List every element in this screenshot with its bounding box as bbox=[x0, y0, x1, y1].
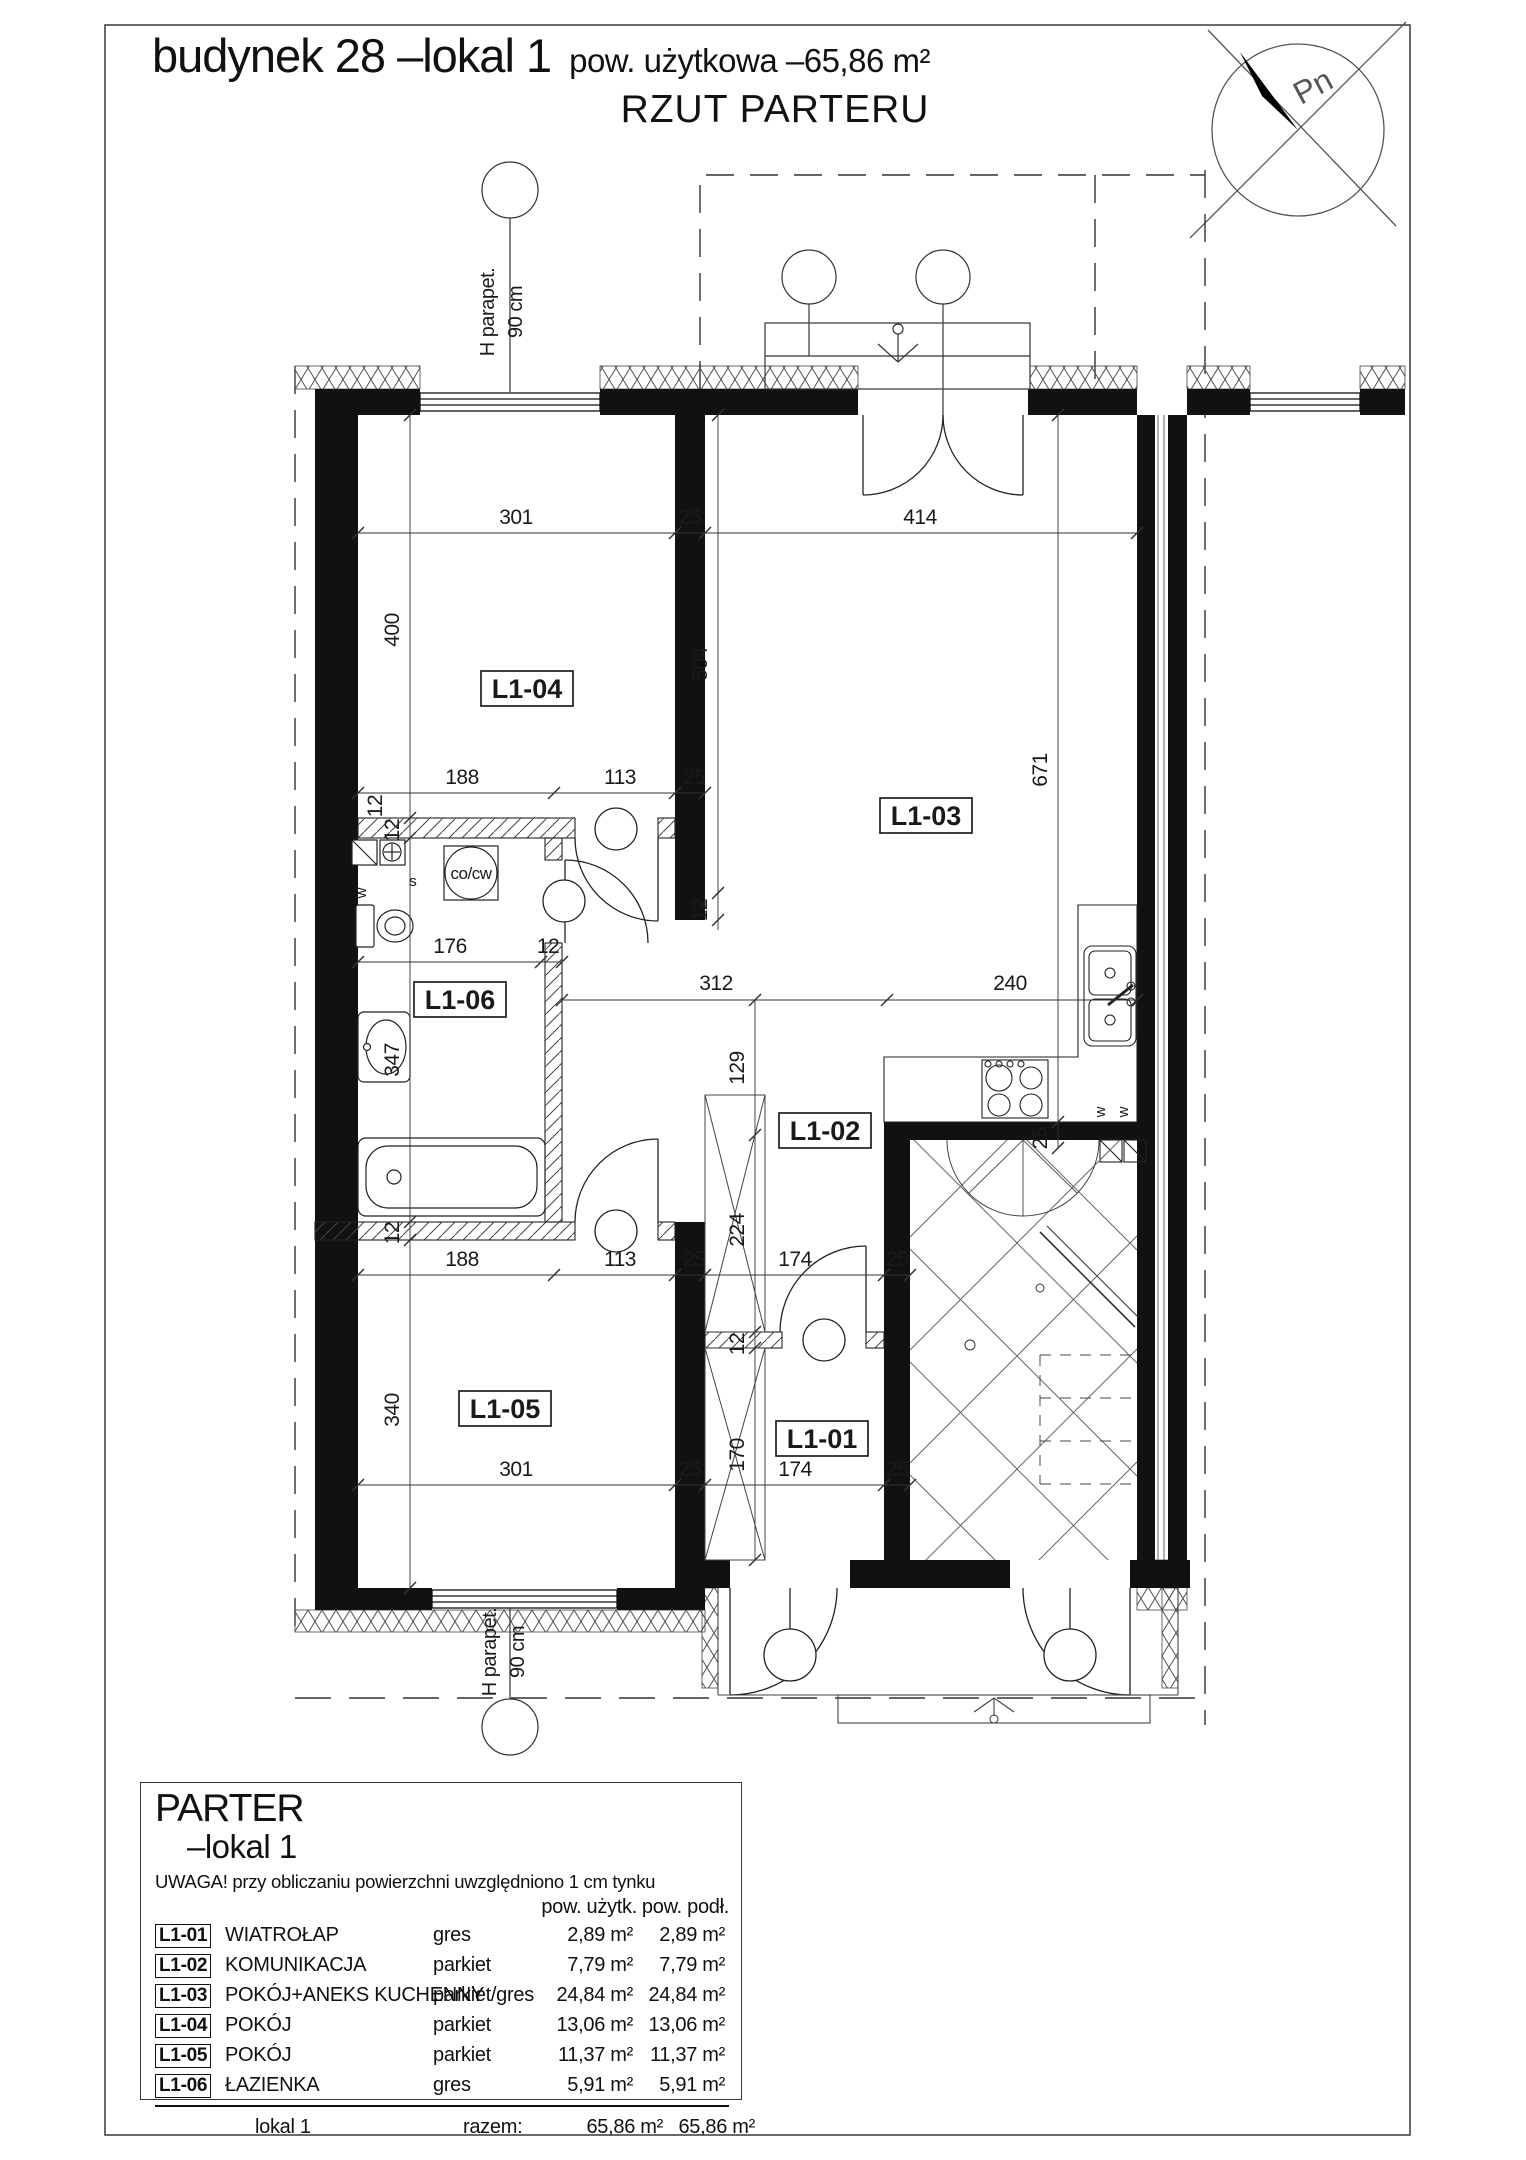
room-label-l106: L1-06 bbox=[414, 982, 506, 1017]
dim-12-p1: 12 bbox=[364, 795, 387, 817]
room-area-uzytk: 2,89 m² bbox=[537, 1924, 633, 1947]
left-wall bbox=[315, 389, 358, 1610]
window-neighbor-top bbox=[1250, 393, 1360, 411]
table-row: L1-01 WIATROŁAP gres 2,89 m² 2,89 m² bbox=[155, 1921, 729, 1951]
total-name: lokal 1 bbox=[225, 2116, 463, 2139]
party-wall-gap-lines bbox=[1158, 415, 1164, 1560]
kitchen-sink bbox=[1084, 946, 1136, 1046]
door-l106 bbox=[543, 860, 648, 943]
room-code: L1-06 bbox=[155, 2074, 211, 2098]
room-label-l102: L1-02 bbox=[779, 1113, 871, 1148]
room-area-uzytk: 13,06 m² bbox=[537, 2014, 633, 2037]
dim-12-bath: 12 bbox=[537, 935, 559, 958]
room-label-l105: L1-05 bbox=[459, 1391, 551, 1426]
dim-504-wall: 504 bbox=[689, 646, 712, 680]
vent-label-w3: w bbox=[1115, 1106, 1132, 1118]
room-floor: parkiet bbox=[433, 1954, 537, 1977]
legend-table: pow. użytk. pow. podł. L1-01 WIATROŁAP g… bbox=[155, 1895, 729, 2145]
svg-text:L1-06: L1-06 bbox=[425, 985, 496, 1015]
dim-414-top: 414 bbox=[903, 506, 937, 529]
dim-312-corridor: 312 bbox=[699, 972, 733, 995]
vent-label-w1: w bbox=[353, 887, 370, 899]
table-row: L1-06 ŁAZIENKA gres 5,91 m² 5,91 m² bbox=[155, 2071, 729, 2101]
dim-113-low: 113 bbox=[604, 1248, 636, 1271]
stove bbox=[982, 1060, 1048, 1118]
col-header-uzytk: pow. użytk. bbox=[541, 1896, 637, 1919]
total-label: razem: bbox=[463, 2116, 567, 2139]
table-row: L1-04 POKÓJ parkiet 13,06 m² 13,06 m² bbox=[155, 2011, 729, 2041]
table-row: L1-03 POKÓJ+ANEKS KUCHENNY parkiet/gres … bbox=[155, 1981, 729, 2011]
bathtub bbox=[358, 1138, 545, 1216]
entry-double-door bbox=[863, 415, 1023, 495]
room-name: POKÓJ bbox=[225, 2014, 433, 2037]
compass-label: Pn bbox=[1287, 61, 1338, 111]
room-code: L1-03 bbox=[155, 1984, 211, 2008]
dim-25-stairwall: 25 bbox=[1029, 1127, 1052, 1149]
dim-25-low: 25 bbox=[683, 1248, 705, 1271]
dim-12-p4: 12 bbox=[726, 1333, 749, 1355]
north-compass: Pn bbox=[1190, 22, 1406, 238]
room-area-uzytk: 7,79 m² bbox=[537, 1954, 633, 1977]
parapet-note-bottom-1: H parapet. bbox=[479, 1608, 501, 1696]
room-code: L1-05 bbox=[155, 2044, 211, 2068]
north-needle-icon bbox=[1240, 52, 1298, 130]
dim-12-wall2: 12 bbox=[689, 899, 712, 921]
dim-174-l101-top: 174 bbox=[778, 1248, 812, 1271]
legend-title: PARTER bbox=[155, 1789, 729, 1830]
dim-25-l105: 25 bbox=[679, 1458, 701, 1481]
total-area-podl: 65,86 m² bbox=[663, 2116, 755, 2139]
legend-note: UWAGA! przy obliczaniu powierzchni uwzgl… bbox=[155, 1871, 729, 1893]
window-l105 bbox=[432, 1590, 617, 1608]
room-name: ŁAZIENKA bbox=[225, 2074, 433, 2097]
parapet-note-top-1: H parapet. bbox=[477, 268, 499, 356]
stair-top-wall bbox=[884, 1122, 1137, 1140]
room-area-uzytk: 24,84 m² bbox=[537, 1984, 633, 2007]
legend-header-row: pow. użytk. pow. podł. bbox=[155, 1895, 729, 1921]
table-row: L1-02 KOMUNIKACJA parkiet 7,79 m² 7,79 m… bbox=[155, 1951, 729, 1981]
flue-shaft-s-icon bbox=[380, 840, 405, 865]
dim-671-l103: 671 bbox=[1029, 753, 1052, 787]
insulation-bands bbox=[295, 366, 1405, 1688]
dim-25-stair: 25 bbox=[886, 1248, 908, 1271]
dim-12-p3: 12 bbox=[381, 1222, 404, 1244]
legend-panel: PARTER –lokal 1 UWAGA! przy obliczaniu p… bbox=[140, 1782, 742, 2100]
parapet-note-bottom-2: 90 cm bbox=[507, 1626, 529, 1678]
room-area-podl: 5,91 m² bbox=[633, 2074, 725, 2097]
dim-240-kitchen: 240 bbox=[993, 972, 1027, 995]
party-wall-inner bbox=[1137, 415, 1155, 1560]
room-floor: parkiet bbox=[433, 2044, 537, 2067]
room-name: KOMUNIKACJA bbox=[225, 1954, 433, 1977]
dim-301-top: 301 bbox=[499, 506, 533, 529]
dim-347-bath: 347 bbox=[381, 1043, 404, 1077]
dim-340-l105: 340 bbox=[381, 1393, 404, 1427]
room-floor: gres bbox=[433, 1924, 537, 1947]
room-area-uzytk: 11,37 m² bbox=[537, 2044, 633, 2067]
staircase bbox=[910, 1140, 1137, 1560]
room-floor: gres bbox=[433, 2074, 537, 2097]
dim-170-l101: 170 bbox=[726, 1438, 749, 1472]
door-l104 bbox=[575, 808, 658, 921]
vent-label-w2: w bbox=[1092, 1106, 1109, 1118]
room-area-podl: 24,84 m² bbox=[633, 1984, 725, 2007]
dim-188-mid: 188 bbox=[445, 766, 479, 789]
room-name: WIATROŁAP bbox=[225, 1924, 433, 1947]
room-code: L1-01 bbox=[155, 1924, 211, 1948]
room-name: POKÓJ bbox=[225, 2044, 433, 2067]
col-header-podl: pow. podł. bbox=[637, 1896, 729, 1919]
window-l104 bbox=[420, 393, 600, 411]
table-row: L1-05 POKÓJ parkiet 11,37 m² 11,37 m² bbox=[155, 2041, 729, 2071]
room-area-podl: 7,79 m² bbox=[633, 1954, 725, 1977]
dim-113-mid: 113 bbox=[604, 766, 636, 789]
room-label-l104: L1-04 bbox=[481, 671, 573, 706]
stair-left-wall bbox=[884, 1140, 910, 1588]
room-area-uzytk: 5,91 m² bbox=[537, 2074, 633, 2097]
room-area-podl: 2,89 m² bbox=[633, 1924, 725, 1947]
dim-301-l105: 301 bbox=[499, 1458, 533, 1481]
boiler-label: co/cw bbox=[451, 864, 493, 883]
duct-shaft bbox=[705, 1095, 765, 1560]
svg-text:L1-03: L1-03 bbox=[891, 801, 962, 831]
dim-176-bath: 176 bbox=[433, 935, 467, 958]
dim-25-mid: 25 bbox=[683, 766, 705, 789]
svg-text:L1-01: L1-01 bbox=[787, 1424, 858, 1454]
room-area-podl: 11,37 m² bbox=[633, 2044, 725, 2067]
parapet-note-top-2: 90 cm bbox=[505, 286, 527, 338]
dim-129: 129 bbox=[726, 1051, 749, 1085]
door-l105 bbox=[575, 1139, 658, 1252]
room-code: L1-04 bbox=[155, 2014, 211, 2038]
svg-text:L1-02: L1-02 bbox=[790, 1116, 861, 1146]
dim-12-wall: 12 bbox=[381, 819, 404, 841]
entry-door-l101 bbox=[730, 1588, 837, 1695]
vent-label-s1: s bbox=[409, 873, 417, 890]
dim-25-top: 25 bbox=[679, 506, 701, 529]
legend-subtitle: –lokal 1 bbox=[187, 1830, 729, 1865]
drawing-sheet: budynek 28 –lokal 1 pow. użytkowa –65,86… bbox=[0, 0, 1526, 2160]
dim-25-stair2: 25 bbox=[886, 1458, 908, 1481]
dim-174-l101-bottom: 174 bbox=[778, 1458, 812, 1481]
entry-arrow-node bbox=[893, 324, 903, 334]
room-floor: parkiet/gres bbox=[433, 1984, 537, 2007]
bottom-entry bbox=[718, 1588, 1178, 1723]
room-name: POKÓJ+ANEKS KUCHENNY bbox=[225, 1984, 433, 2007]
entry-door-staircase bbox=[1023, 1588, 1130, 1695]
room-label-l101: L1-01 bbox=[776, 1421, 868, 1456]
svg-text:L1-04: L1-04 bbox=[492, 674, 563, 704]
total-area-uzytk: 65,86 m² bbox=[567, 2116, 663, 2139]
svg-text:L1-05: L1-05 bbox=[470, 1394, 541, 1424]
room-floor: parkiet bbox=[433, 2014, 537, 2037]
kitchen-counter bbox=[884, 905, 1137, 1122]
dim-400-l104: 400 bbox=[381, 613, 404, 647]
party-wall-outer bbox=[1168, 415, 1187, 1560]
room-area-podl: 13,06 m² bbox=[633, 2014, 725, 2037]
dim-188-low: 188 bbox=[445, 1248, 479, 1271]
toilet bbox=[356, 905, 413, 947]
room-code: L1-02 bbox=[155, 1954, 211, 1978]
dim-224-shaft: 224 bbox=[726, 1212, 749, 1246]
legend-total-row: lokal 1 razem: 65,86 m² 65,86 m² bbox=[155, 2105, 729, 2145]
room-label-l103: L1-03 bbox=[880, 798, 972, 833]
vent-shaft-w-icon bbox=[352, 840, 377, 865]
bathroom-fixtures bbox=[352, 840, 545, 1216]
